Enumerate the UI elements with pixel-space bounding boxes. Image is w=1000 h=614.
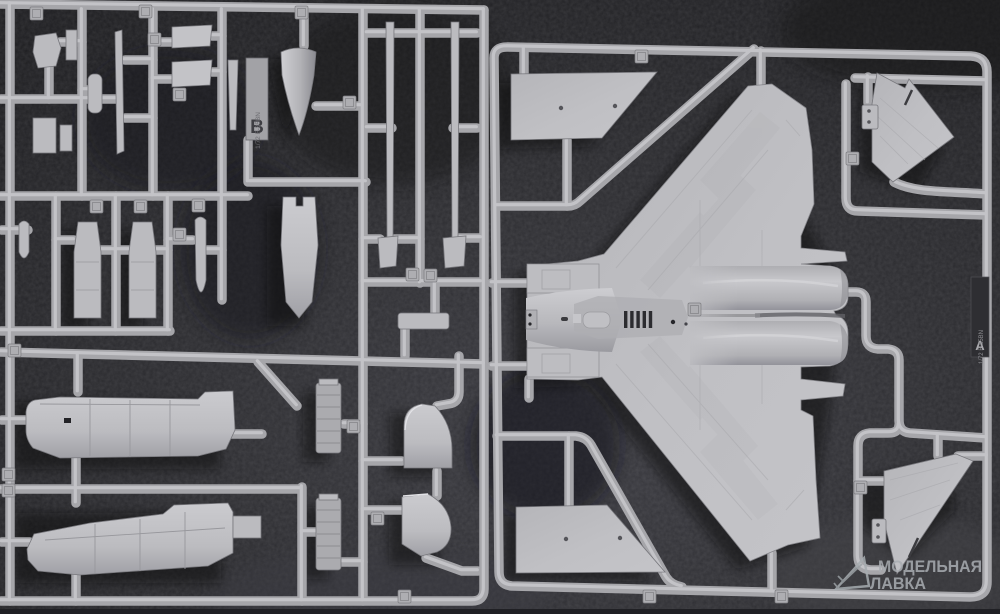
svg-text:МОДЕЛЬНАЯ: МОДЕЛЬНАЯ xyxy=(878,558,982,576)
svg-text:1/72 F-35BN: 1/72 F-35BN xyxy=(255,112,262,149)
svg-text:ЛАВКА: ЛАВКА xyxy=(870,575,926,593)
svg-text:1/72 F-35BN: 1/72 F-35BN xyxy=(979,330,985,364)
